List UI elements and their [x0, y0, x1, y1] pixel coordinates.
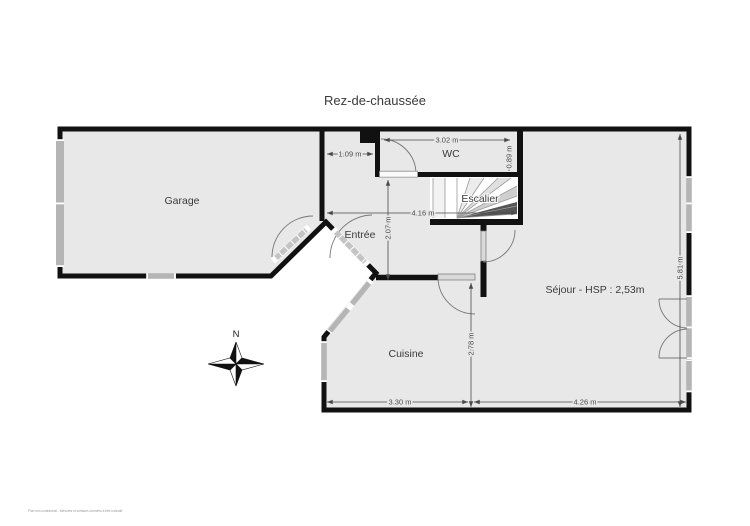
french-door-glazing [686, 295, 692, 359]
room-label-entree: Entrée [345, 229, 376, 241]
room-label-escalier: Escalier [461, 193, 499, 205]
dimension-label-cuisine-depth: 2.78 m [467, 333, 476, 356]
fine-print: Plan non contractuel - Mesures et surfac… [28, 509, 122, 513]
garage-door [56, 139, 64, 267]
sejour-window-upper [686, 176, 692, 233]
dimension-label-wc-width: 3.02 m [436, 136, 459, 145]
floor-plan-drawing: Rez-de-chaussée [0, 0, 750, 526]
sejour-window-lower [686, 359, 692, 392]
dimension-label-cuisine-width: 3.30 m [389, 398, 412, 407]
garage-window [146, 273, 176, 279]
page-title: Rez-de-chaussée [324, 93, 426, 108]
floor-plan-page: Rez-de-chaussée [0, 0, 750, 526]
compass-rose: N [208, 329, 264, 386]
dimension-label-sejour-width: 4.26 m [574, 398, 597, 407]
cuisine-window [321, 341, 327, 382]
dimension-label-hall-width: 4.16 m [412, 209, 435, 218]
compass-north-label: N [233, 329, 240, 340]
dimension-label-sejour-height: 5.81 m [676, 257, 685, 280]
room-label-cuisine: Cuisine [388, 348, 423, 360]
room-label-wc: WC [442, 148, 460, 160]
room-label-sejour: Séjour - HSP : 2,53m [545, 284, 644, 296]
dimension-label-wc-depth: 0.89 m [505, 146, 514, 169]
dimension-label-hall-depth: 2.07 m [384, 217, 393, 240]
room-label-garage: Garage [164, 195, 199, 207]
dimension-label-entry-nook: 1.09 m [339, 150, 362, 159]
